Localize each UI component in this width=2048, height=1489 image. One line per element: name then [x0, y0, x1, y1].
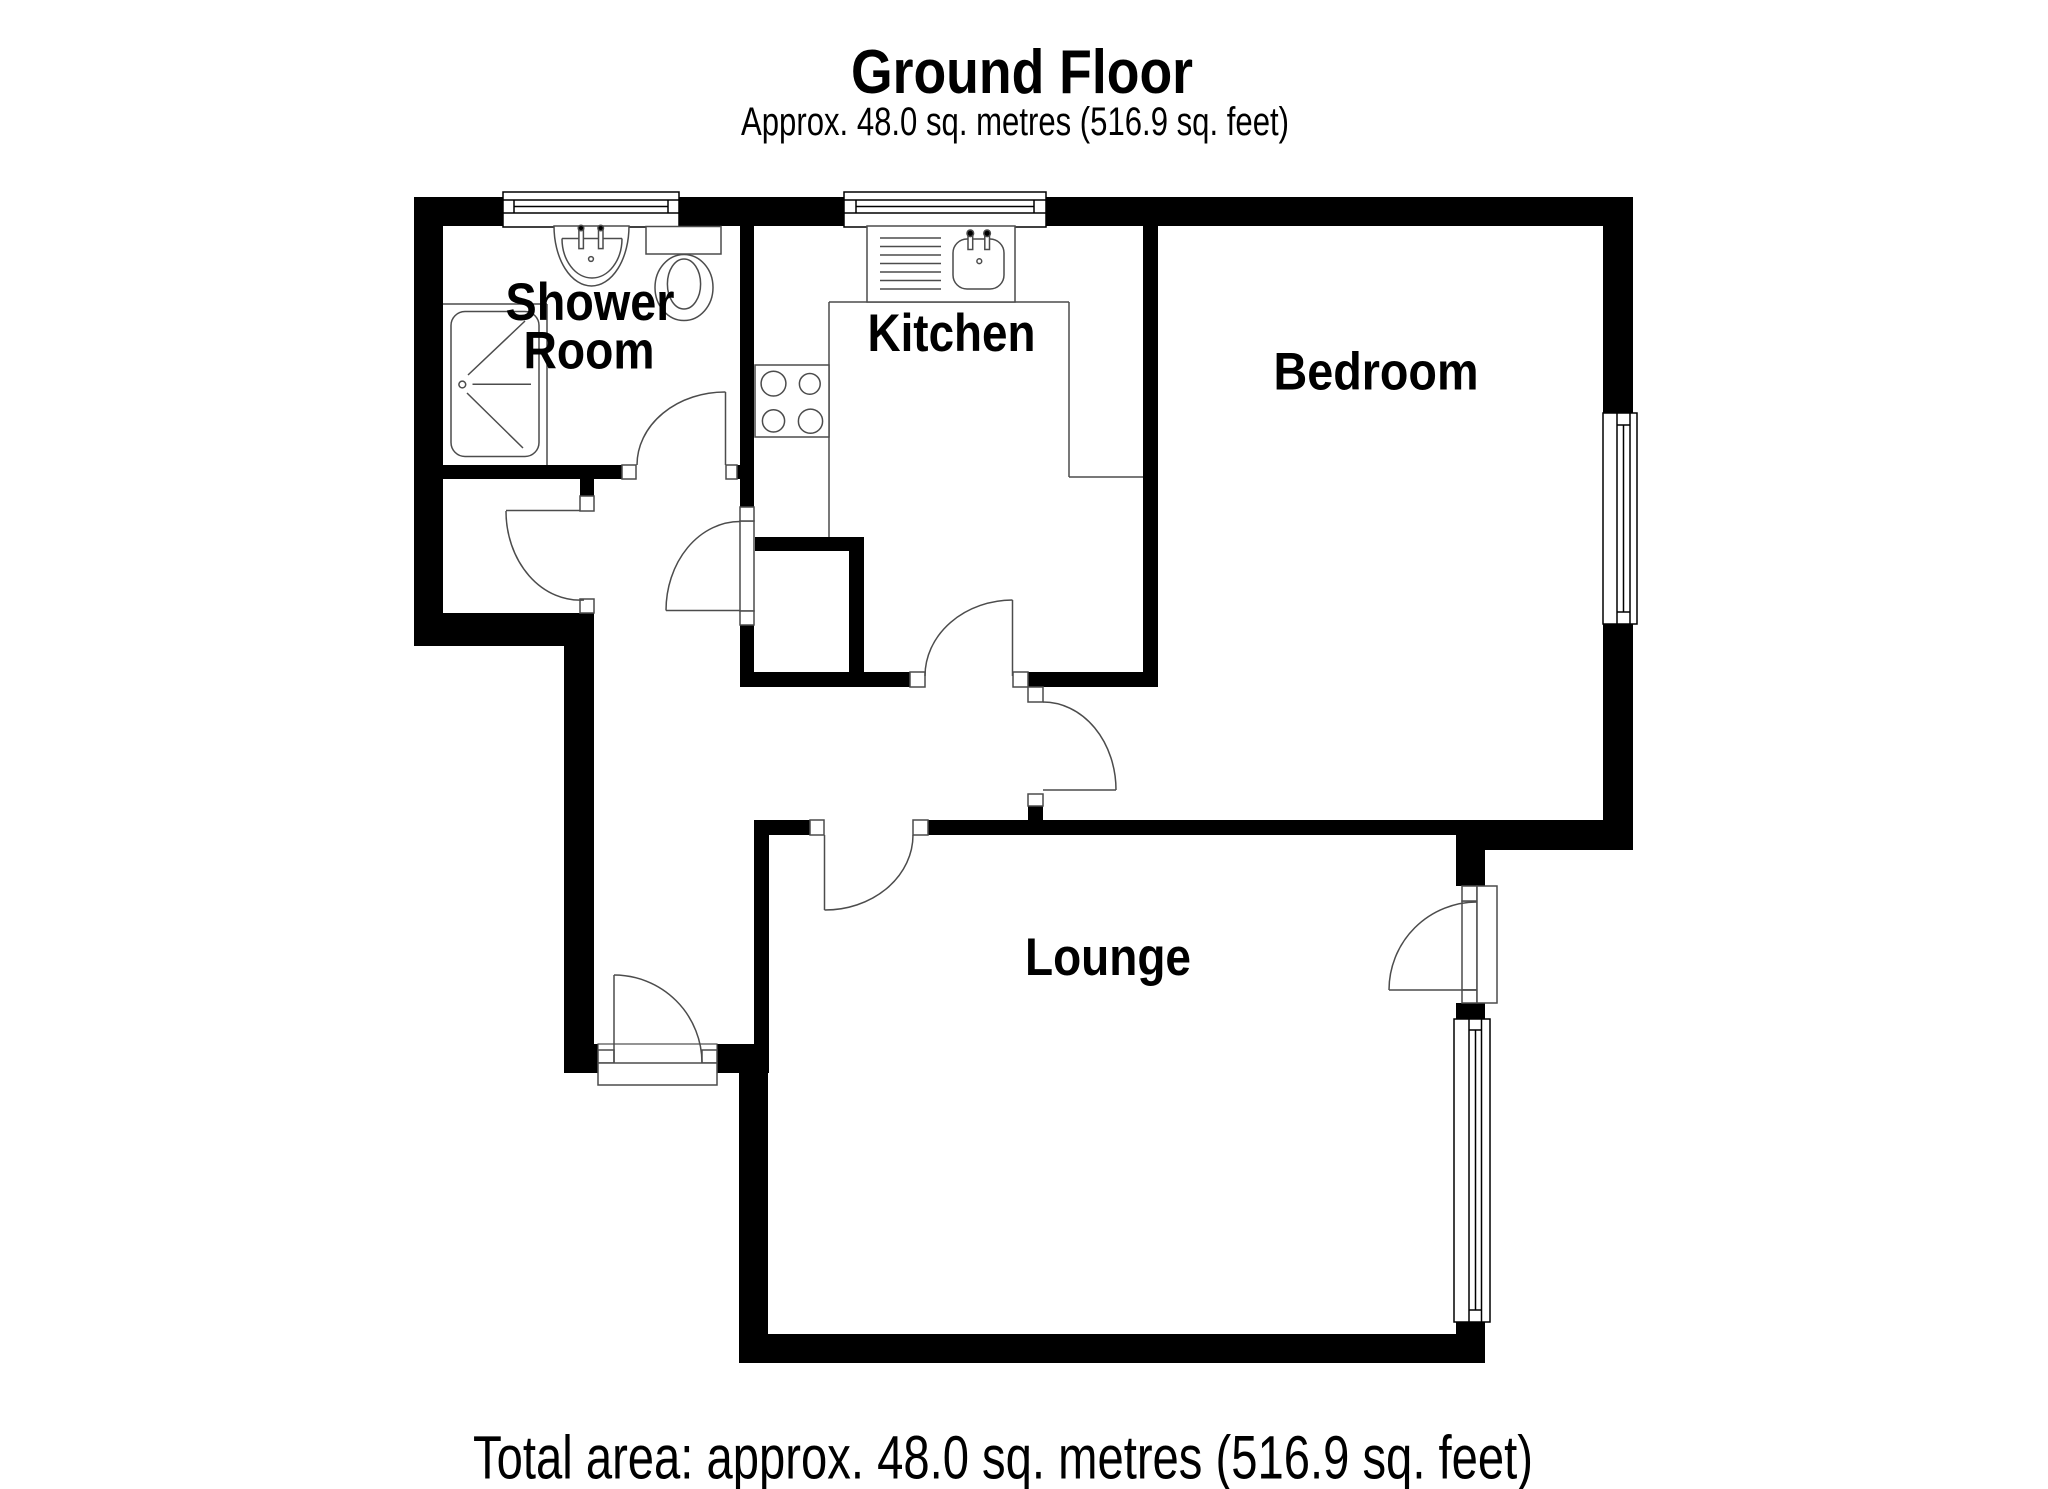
svg-text:Room: Room [524, 322, 655, 381]
svg-text:Total area: approx. 48.0 sq. m: Total area: approx. 48.0 sq. metres (516… [473, 1424, 1533, 1489]
svg-text:Bedroom: Bedroom [1274, 343, 1479, 402]
svg-text:Kitchen: Kitchen [868, 304, 1036, 363]
svg-text:Approx. 48.0 sq. metres (516.9: Approx. 48.0 sq. metres (516.9 sq. feet) [741, 100, 1289, 144]
svg-text:Ground Floor: Ground Floor [851, 38, 1193, 107]
svg-text:Lounge: Lounge [1025, 928, 1191, 987]
